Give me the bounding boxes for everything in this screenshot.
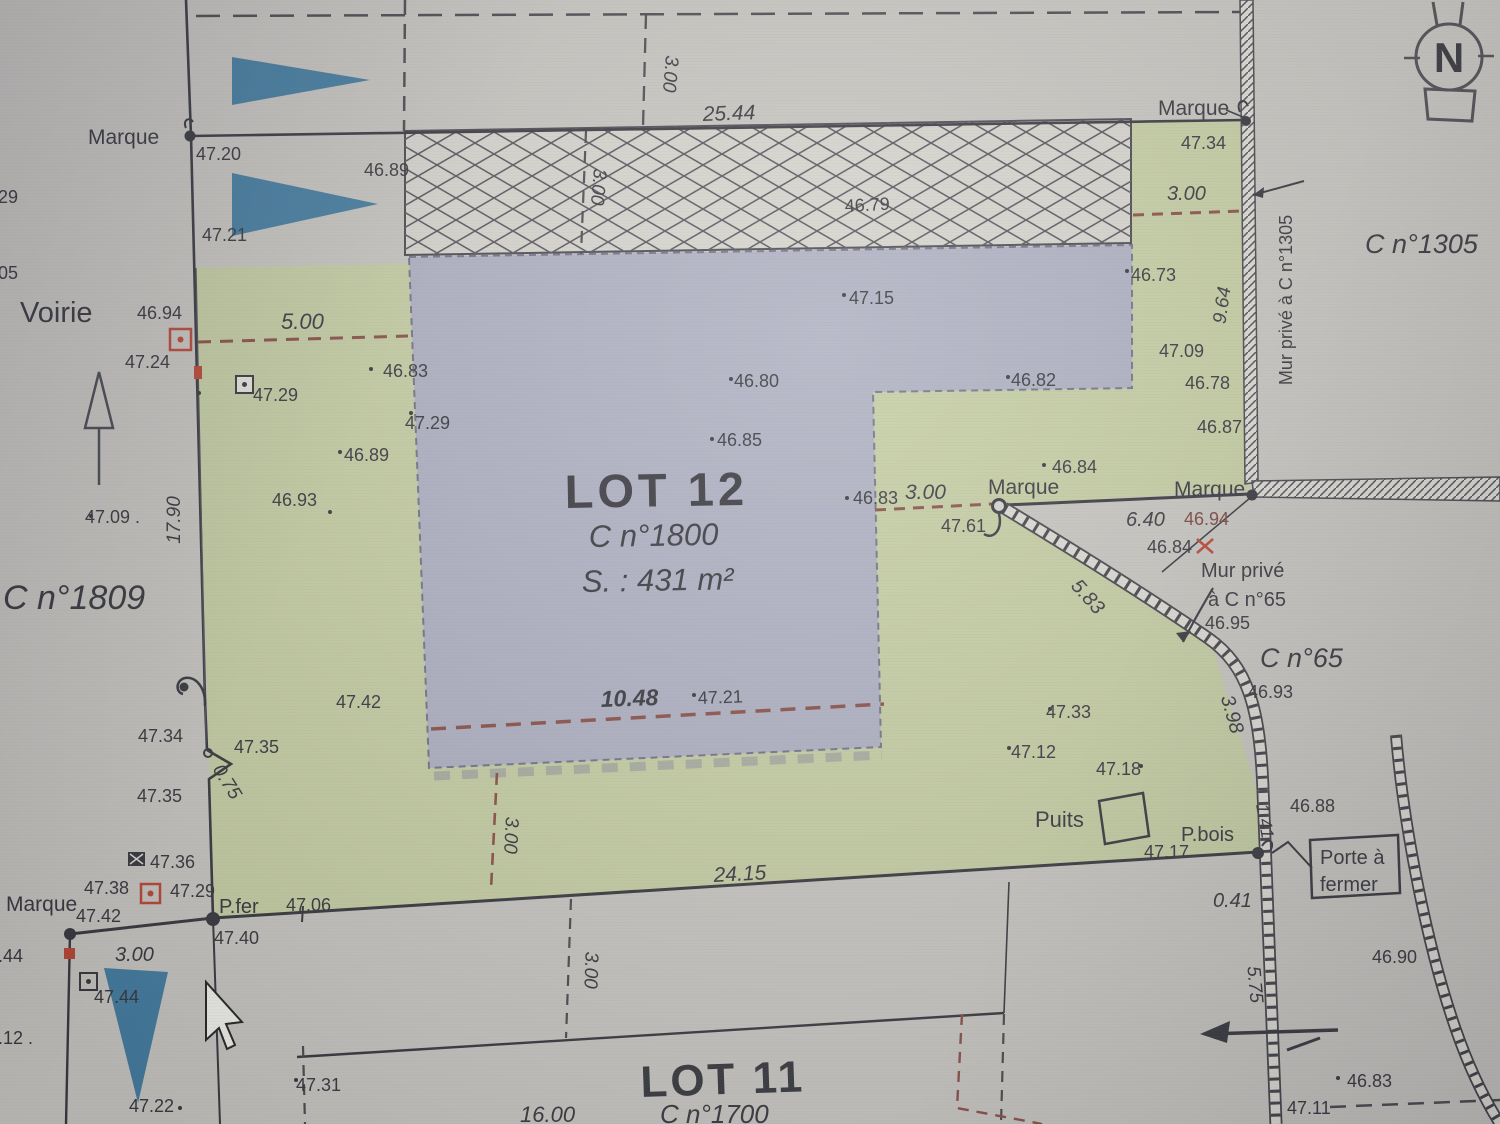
plan-label: 17.90 [164, 496, 185, 544]
plan-label: 47.12 . [0, 1028, 33, 1048]
plan-label: 47.21 [697, 686, 743, 708]
plan-label: 46.94 [137, 303, 182, 323]
pfer-point [206, 912, 220, 926]
survey-square-dark [128, 852, 145, 866]
plan-label: 47.42 [76, 906, 121, 926]
plan-label: 47.35 [137, 786, 182, 806]
plan-label: 47.09 [1159, 341, 1204, 361]
marque-label-top-right: Marque [1158, 97, 1229, 120]
plan-label: 47.44 [0, 946, 23, 966]
plan-label: 46.87 [1197, 417, 1242, 437]
survey-dot [369, 367, 373, 371]
lot12-title: LOT 12 [564, 462, 748, 518]
plan-label: 46.89 [364, 160, 409, 180]
survey-dot [842, 293, 846, 297]
plan-label: 46.90 [1372, 947, 1417, 967]
plan-label: 47.22 [129, 1096, 174, 1116]
plan-label: 46.84 [1147, 537, 1192, 557]
plan-label: 47.36 [150, 852, 195, 872]
survey-dot [710, 437, 714, 441]
plan-label: 47.61 [941, 516, 986, 536]
plan-label: 46.73 [1131, 265, 1176, 285]
plan-label: 47.29 [253, 385, 298, 405]
survey-dot [178, 1106, 182, 1110]
survey-dot [338, 450, 342, 454]
cadastral-plan: Marque47.2046.8947.2147.2947.053.0025.44… [0, 0, 1500, 1124]
pfer-label: P.fer [219, 896, 259, 918]
survey-dot [197, 391, 201, 395]
parcel-label-c1700: C n°1700 [660, 1099, 769, 1124]
marque-label-top-left: Marque [88, 126, 159, 149]
plan-label: 3.00 [115, 944, 154, 966]
wall-label-c65-line1: Mur privé [1201, 560, 1284, 582]
gate-label-line2: fermer [1320, 874, 1378, 896]
marque-label-mid-left: Marque [988, 476, 1059, 499]
red-mark-bottom-left [64, 948, 75, 959]
survey-dot [1125, 269, 1129, 273]
plan-label: 47.17 [1144, 842, 1189, 862]
plan-label: 46.94 [1184, 509, 1229, 529]
survey-dot [845, 496, 849, 500]
plan-label: 10.48 [600, 684, 659, 712]
plan-label: 47.35 [234, 737, 279, 757]
plan-label: 46.79 [844, 194, 890, 216]
wall-label-c65-line2: à C n°65 [1208, 589, 1286, 611]
plan-label: 47.33 [1046, 702, 1091, 722]
lot12-area: S. : 431 m² [582, 561, 736, 599]
plan-label: 47.11 [1287, 1098, 1331, 1118]
marque-label-mid-right: Marque [1174, 478, 1245, 501]
plan-drawing: Marque47.2046.8947.2147.2947.053.0025.44… [0, 0, 1500, 1124]
plan-label: 47.29 [405, 413, 450, 433]
survey-dot [692, 693, 696, 697]
plan-label: 46.83 [1347, 1071, 1392, 1091]
plan-label: 46.84 [1052, 457, 1097, 477]
plan-label: 3.00 [579, 951, 601, 989]
plan-label: 47.24 [125, 352, 170, 372]
plan-label: 46.93 [1248, 682, 1293, 702]
plan-label: 47.21 [202, 225, 247, 245]
plan-label: 47.15 [849, 288, 894, 308]
survey-dot [328, 510, 332, 514]
plan-label: 47.06 [286, 895, 331, 915]
plan-label: 47.18 [1096, 759, 1141, 779]
survey-dot [1042, 463, 1046, 467]
plan-label: 6.40 [1126, 509, 1165, 531]
plan-label: 47.40 [214, 928, 259, 948]
plan-label: 46.83 [853, 488, 898, 508]
plan-label: 47.12 [1011, 742, 1056, 762]
plan-label: 47.29 [0, 187, 18, 207]
plan-label: 47.42 [336, 692, 381, 712]
marque-point-bottom-left [64, 928, 76, 940]
marque-label-bottom-left: Marque [6, 893, 77, 916]
plan-label: 47.09 . [85, 507, 140, 527]
plan-label: 47.34 [138, 726, 183, 746]
compass-n-label: N [1434, 34, 1464, 81]
plan-label: 47.05 [0, 263, 18, 283]
wall-horizontal-east [1252, 477, 1500, 501]
plan-label: 3.00 [658, 55, 682, 94]
plan-label: 47.34 [1181, 133, 1226, 153]
gate-label-line1: Porte à [1320, 847, 1385, 869]
hatched-building-band-hatch [405, 119, 1131, 255]
plan-label: 24.15 [712, 861, 767, 887]
plan-label: 3.00 [499, 816, 522, 854]
road-label-voirie: Voirie [20, 297, 93, 329]
lot12-parcel: C n°1800 [589, 517, 719, 554]
plan-label: 46.78 [1185, 373, 1230, 393]
plan-label: 46.93 [272, 490, 317, 510]
parcel-label-c1305: C n°1305 [1365, 229, 1479, 259]
plan-label: 46.89 [344, 445, 389, 465]
plan-label: 25.44 [701, 101, 755, 126]
plan-label: 46.85 [717, 430, 762, 450]
parcel-label-c1809: C n°1809 [3, 579, 145, 617]
plan-label: 47.38 [84, 878, 129, 898]
plan-label: 47.44 [94, 987, 139, 1007]
plan-label: 0.41 [1213, 890, 1252, 912]
parcel-label-c65: C n°65 [1260, 643, 1344, 673]
survey-dot [1006, 375, 1010, 379]
plan-label: 3.00 [586, 168, 610, 207]
plan-label: 46.83 [383, 361, 428, 381]
plan-label: 47.31 [296, 1075, 341, 1095]
plan-label: 47.20 [196, 144, 241, 164]
plan-label: 46.82 [1011, 370, 1056, 390]
plan-label: 46.95 [1205, 613, 1250, 633]
plan-label: 3.00 [1167, 183, 1206, 205]
plan-label: 47.29 [170, 881, 215, 901]
plan-label: 16.00 [520, 1102, 576, 1124]
plan-label: 5.75 [1242, 965, 1266, 1004]
plan-label: 46.80 [734, 371, 779, 391]
plan-label: 3.00 [905, 481, 946, 504]
survey-dot [1336, 1076, 1340, 1080]
well-label: Puits [1035, 807, 1084, 832]
plan-label: 5.00 [281, 309, 325, 334]
survey-dot [729, 377, 733, 381]
survey-square-black-1 [236, 376, 253, 393]
wall-label-c1305: Mur privé à C n°1305 [1276, 215, 1296, 385]
plan-label: 46.88 [1290, 796, 1335, 816]
